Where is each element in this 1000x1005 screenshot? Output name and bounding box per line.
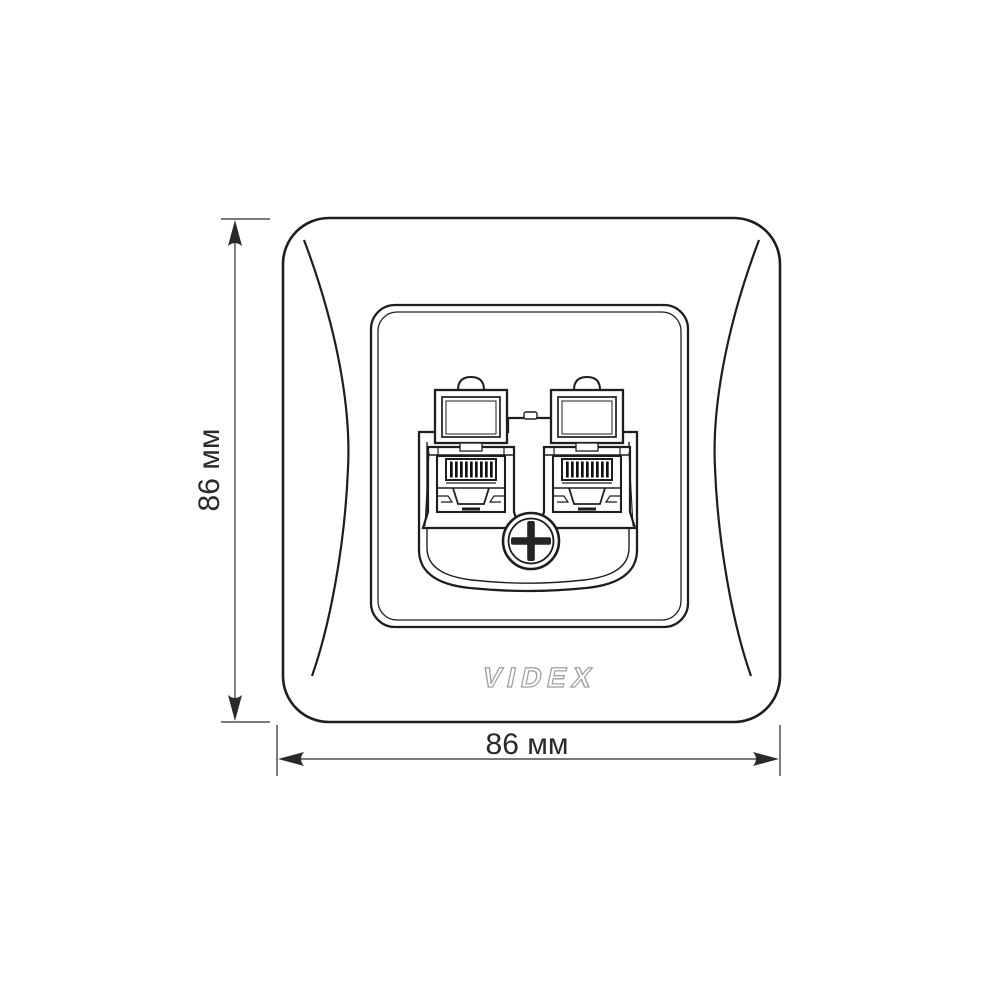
right-pin-contacts (566, 462, 609, 478)
arrow-right-icon (753, 752, 779, 766)
left-flap-tab (458, 377, 484, 390)
right-flap-inner (562, 401, 612, 434)
dimension-drawing: VIDEX 86 мм 86 мм (0, 0, 1000, 1000)
height-dimension-label: 86 мм (193, 429, 226, 512)
left-flap-inner (446, 401, 496, 434)
left-pin-contacts (450, 462, 493, 478)
right-flap-tab (574, 377, 600, 390)
brand-logo-text: VIDEX (480, 661, 601, 693)
width-dimension-label: 86 мм (486, 728, 569, 761)
left-flap-hinge-tab (460, 443, 482, 451)
center-screw (503, 513, 559, 569)
arrow-up-icon (228, 220, 242, 246)
brand-logo: VIDEX (480, 661, 601, 693)
technical-drawing-page: VIDEX 86 мм 86 мм (0, 0, 1000, 1000)
right-flap-hinge-tab (576, 443, 598, 451)
arrow-left-icon (278, 752, 304, 766)
arrow-down-icon (228, 695, 242, 721)
module-center-tab (524, 412, 537, 419)
horizontal-dimension: 86 мм (277, 725, 780, 776)
right-rj45-port (539, 377, 635, 528)
left-rj45-port (423, 377, 519, 528)
vertical-dimension: 86 мм (193, 219, 270, 722)
